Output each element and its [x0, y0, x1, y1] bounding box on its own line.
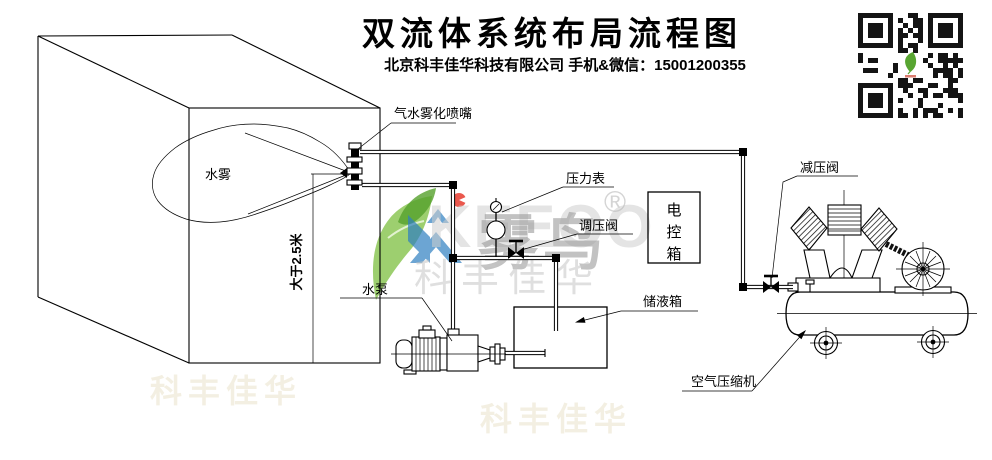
water-pump-label: 水泵 [362, 282, 388, 297]
storage-tank-label: 储液箱 [643, 294, 682, 309]
qr-code [852, 8, 970, 123]
air-compressor-label: 空气压缩机 [691, 374, 756, 389]
cream-watermark-text-2: 科丰佳华 [480, 401, 632, 437]
fin-block [828, 205, 861, 235]
title-block: 双流体系统布局流程图 北京科丰佳华科技有限公司 手机&微信：1500120035… [362, 15, 746, 74]
page-subtitle: 北京科丰佳华科技有限公司 手机&微信：15001200355 [384, 56, 746, 74]
height-dimension-label: 大于2.5米 [289, 232, 304, 290]
control-box-char-2: 控 [666, 224, 681, 241]
cream-watermark-text-1: 科丰佳华 [150, 373, 302, 409]
page-title: 双流体系统布局流程图 [362, 15, 742, 52]
reducing-valve-label: 减压阀 [800, 160, 839, 175]
qr-center-logo [898, 52, 923, 78]
control-box-char-1: 电 [666, 202, 681, 219]
nozzle-label: 气水雾化喷嘴 [394, 106, 472, 121]
regulating-valve-label: 调压阀 [579, 218, 618, 233]
watermark-company-text: 科丰佳华 [414, 258, 602, 300]
registered-mark: ® [604, 186, 626, 219]
pressure-gauge-label: 压力表 [566, 171, 605, 186]
control-box-char-3: 箱 [666, 246, 681, 263]
mist-label: 水雾 [205, 167, 231, 182]
flow-diagram-canvas: 科丰佳华 科丰佳华 KEEOO 雾鸟 科丰佳华 ® 水雾 [0, 0, 992, 460]
diagram-page: 科丰佳华 科丰佳华 KEEOO 雾鸟 科丰佳华 ® 水雾 [0, 0, 992, 460]
